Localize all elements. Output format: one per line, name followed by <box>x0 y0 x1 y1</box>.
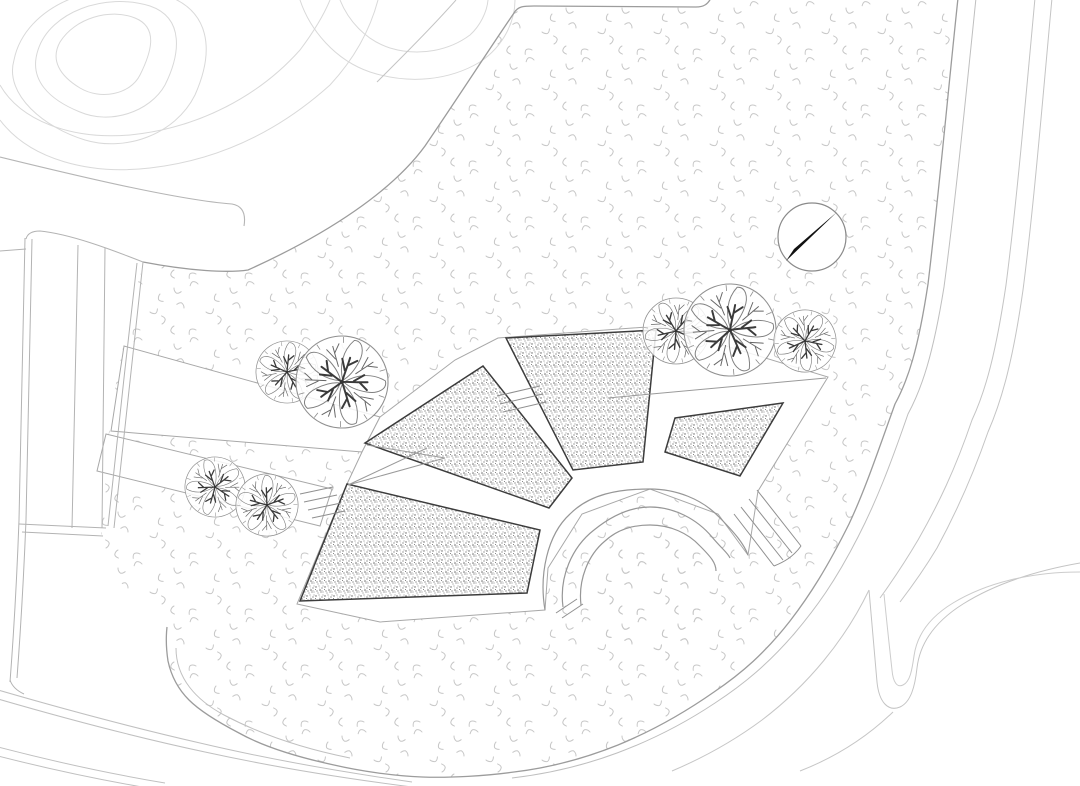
diagonal-path-edge <box>377 0 456 82</box>
west-road-top-corner <box>26 231 143 262</box>
contour-line <box>56 14 151 94</box>
hairpin-path <box>884 572 1080 686</box>
upper-path-edge <box>0 157 245 226</box>
north-arrow-circle <box>778 203 846 271</box>
west-road-stub <box>0 249 26 251</box>
south-path-line <box>800 712 893 771</box>
amphitheater-lawn-bowl <box>584 531 716 663</box>
contour-line <box>0 0 330 136</box>
west-road-line <box>10 238 25 682</box>
west-road-end <box>19 524 106 536</box>
west-road-line <box>72 245 78 528</box>
contour-line <box>0 0 378 170</box>
west-road-line <box>17 239 32 678</box>
west-road-join <box>10 680 24 694</box>
site-plan-page <box>0 0 1080 786</box>
hairpin-path <box>869 563 1080 708</box>
southwest-road-line <box>0 747 165 783</box>
plan-drawing-layer <box>0 0 1080 786</box>
southwest-road-line <box>0 756 148 786</box>
north-arrow <box>778 203 846 271</box>
contour-line <box>12 0 206 144</box>
site-plan-svg <box>0 0 1080 786</box>
